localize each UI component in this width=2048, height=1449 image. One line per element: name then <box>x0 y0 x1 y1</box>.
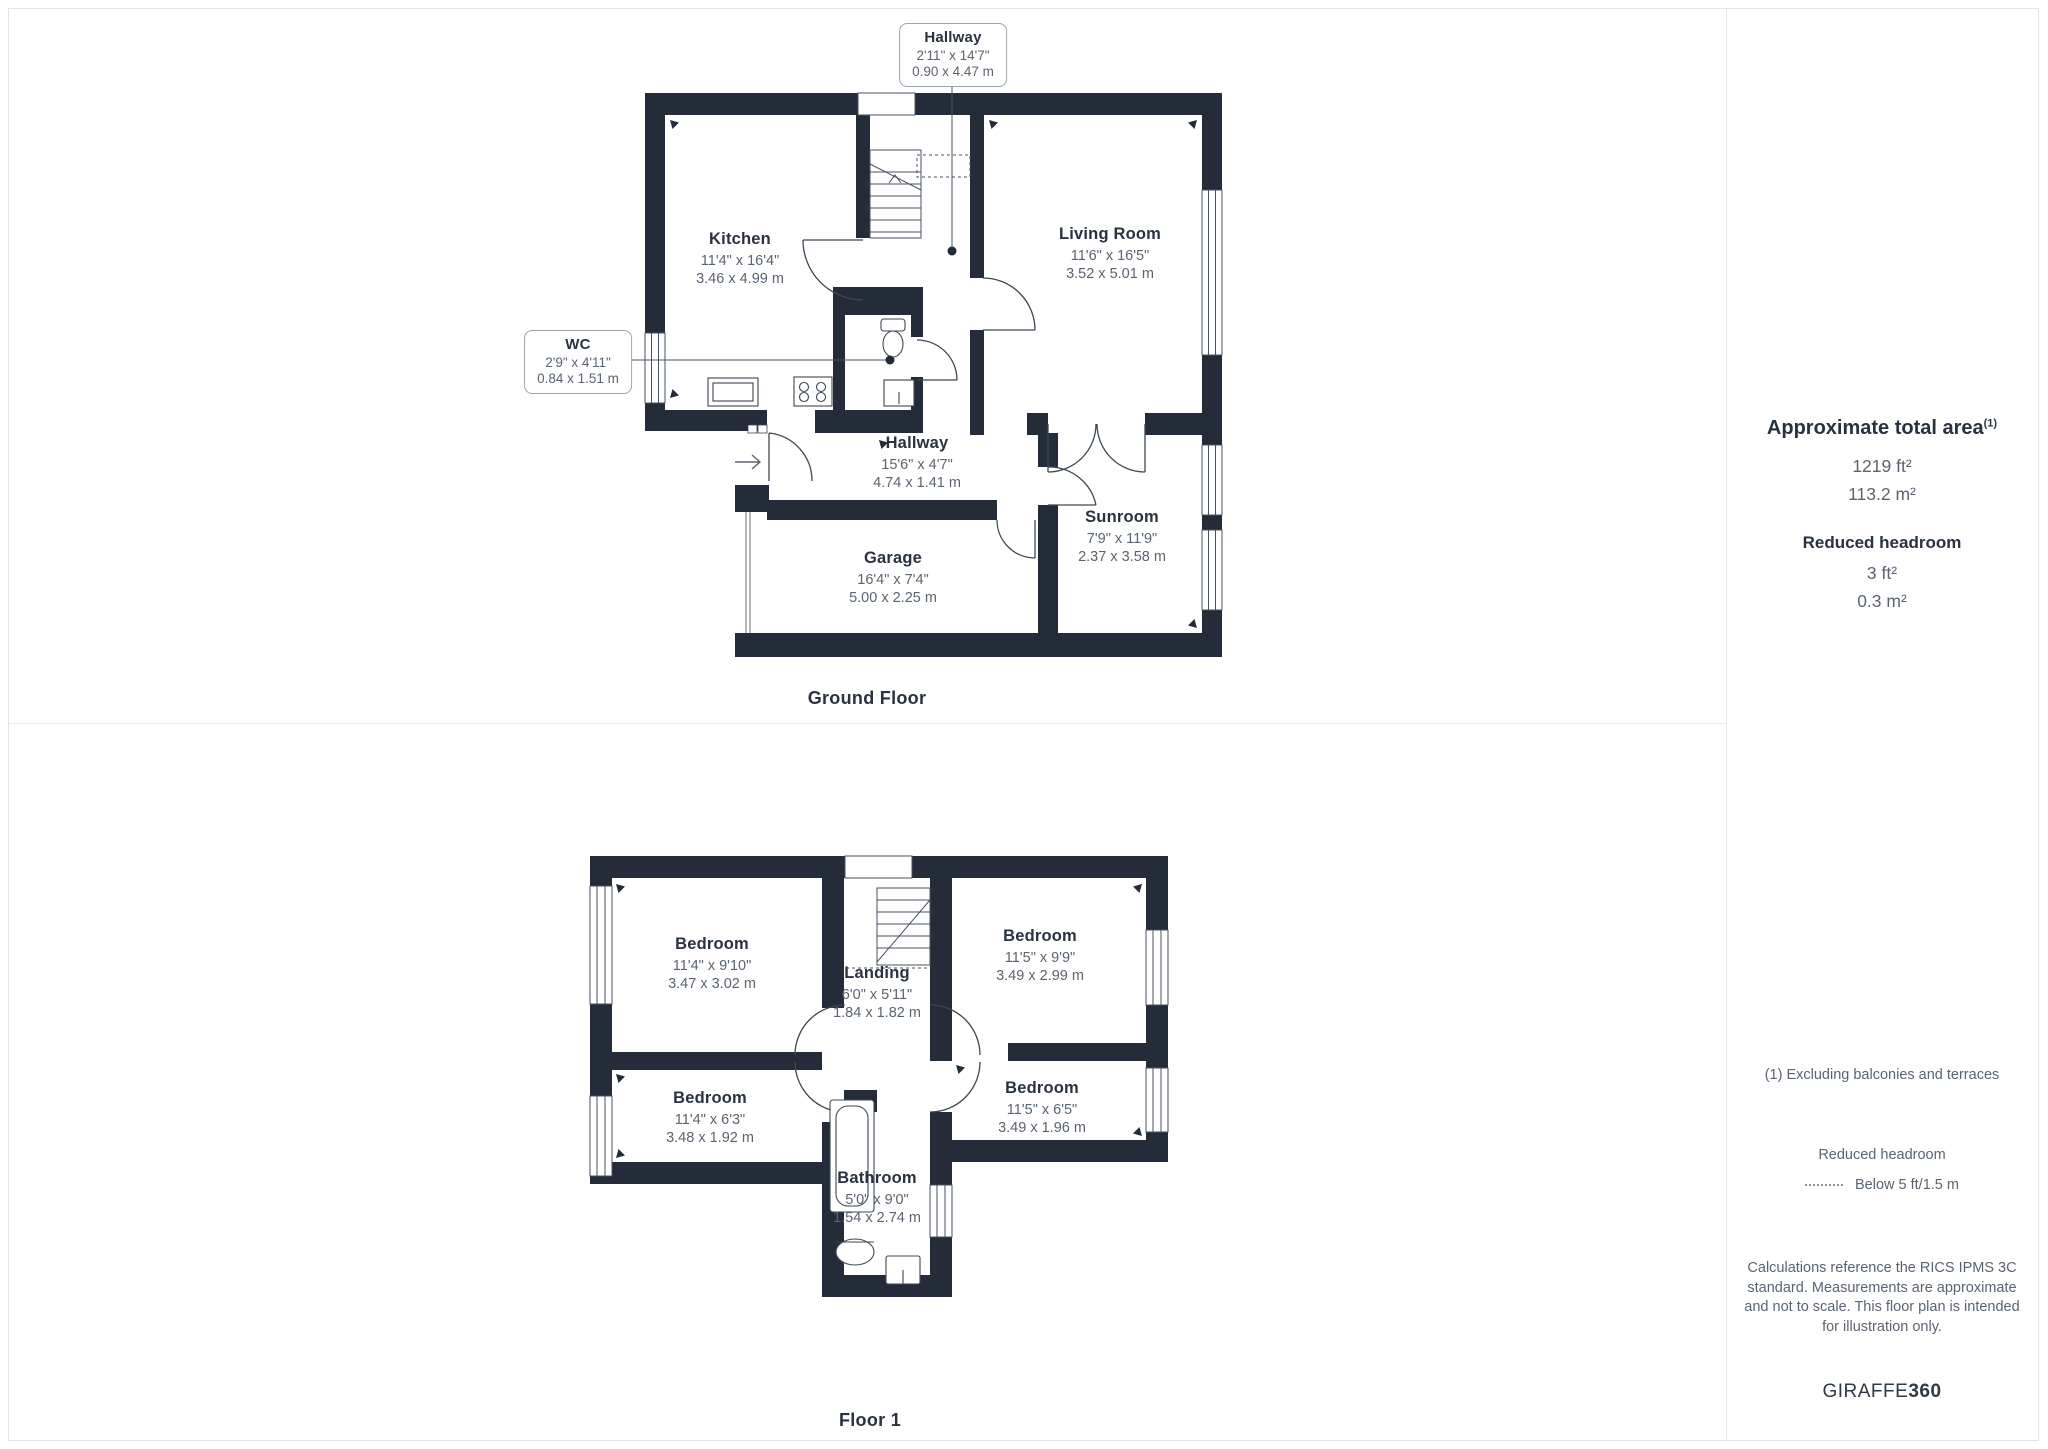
room-dim-metric: 5.00 x 2.25 m <box>849 589 937 607</box>
room-dim-imperial: 5'0" x 9'0" <box>833 1191 921 1209</box>
chimney-recess <box>858 93 915 115</box>
total-area-ft: 1219 ft² <box>1727 456 2037 477</box>
room-dim-imperial: 16'4" x 7'4" <box>849 571 937 589</box>
room-dim-imperial: 6'0" x 5'11" <box>833 986 921 1004</box>
total-area-title: Approximate total area(1) <box>1727 417 2037 440</box>
room-label-living-room: Living Room 11'6" x 16'5" 3.52 x 5.01 m <box>1059 225 1161 283</box>
room-dim-metric: 0.90 x 4.47 m <box>912 64 994 80</box>
footnote-marker: (1) <box>1984 417 1997 429</box>
room-label-sunroom: Sunroom 7'9" x 11'9" 2.37 x 3.58 m <box>1078 508 1166 566</box>
callout-wc: WC 2'9" x 4'11" 0.84 x 1.51 m <box>524 330 632 394</box>
room-dim-imperial: 15'6" x 4'7" <box>873 456 961 474</box>
legend-title: Reduced headroom <box>1727 1147 2037 1163</box>
room-dim-metric: 0.84 x 1.51 m <box>537 371 619 387</box>
room-dim-imperial: 11'5" x 9'9" <box>996 949 1084 967</box>
room-name: Bedroom <box>668 935 756 954</box>
room-dim-imperial: 11'4" x 9'10" <box>668 957 756 975</box>
room-dim-imperial: 2'9" x 4'11" <box>537 355 619 371</box>
entry-arrow-icon <box>735 455 760 469</box>
room-label-bedroom-top-right: Bedroom 11'5" x 9'9" 3.49 x 2.99 m <box>996 927 1084 985</box>
room-name: Sunroom <box>1078 508 1166 527</box>
dotted-line-icon <box>1805 1184 1843 1186</box>
room-dim-metric: 1.54 x 2.74 m <box>833 1209 921 1227</box>
floor-1-plan <box>590 856 1168 1297</box>
room-dim-imperial: 11'5" x 6'5" <box>998 1101 1086 1119</box>
room-label-hallway: Hallway 15'6" x 4'7" 4.74 x 1.41 m <box>873 434 961 492</box>
ground-floor-title: Ground Floor <box>808 688 927 709</box>
toilet <box>886 1256 920 1284</box>
stairs <box>870 150 970 238</box>
room-dim-metric: 4.74 x 1.41 m <box>873 474 961 492</box>
garage-open-boundary <box>746 512 750 633</box>
room-name: WC <box>537 336 619 353</box>
room-name: Bathroom <box>833 1169 921 1188</box>
room-label-kitchen: Kitchen 11'4" x 16'4" 3.46 x 4.99 m <box>696 230 784 288</box>
room-dim-metric: 3.47 x 3.02 m <box>668 975 756 993</box>
legend-label: Below 5 ft/1.5 m <box>1855 1177 1959 1193</box>
room-name: Garage <box>849 549 937 568</box>
room-dim-imperial: 7'9" x 11'9" <box>1078 530 1166 548</box>
floor-1-title: Floor 1 <box>839 1410 901 1431</box>
room-label-landing: Landing 6'0" x 5'11" 1.84 x 1.82 m <box>833 964 921 1022</box>
room-name: Living Room <box>1059 225 1161 244</box>
total-area-title-text: Approximate total area <box>1767 417 1984 439</box>
reduced-headroom-ft: 3 ft² <box>1727 563 2037 584</box>
callout-hallway-upper: Hallway 2'11" x 14'7" 0.90 x 4.47 m <box>899 23 1007 87</box>
room-dim-imperial: 11'4" x 16'4" <box>696 252 784 270</box>
summary-sidebar: Approximate total area(1) 1219 ft² 113.2… <box>1727 9 2037 1439</box>
room-name: Hallway <box>912 29 994 46</box>
room-dim-metric: 3.48 x 1.92 m <box>666 1129 754 1147</box>
chimney-recess <box>845 856 912 878</box>
room-dim-imperial: 11'4" x 6'3" <box>666 1111 754 1129</box>
brand-number: 360 <box>1908 1381 1941 1402</box>
bathroom-sink <box>836 1239 874 1265</box>
wc-basin <box>884 380 914 406</box>
room-label-bedroom-bottom-right: Bedroom 11'5" x 6'5" 3.49 x 1.96 m <box>998 1079 1086 1137</box>
brand-logo: GIRAFFE360 <box>1727 1381 2037 1403</box>
room-label-garage: Garage 16'4" x 7'4" 5.00 x 2.25 m <box>849 549 937 607</box>
room-name: Hallway <box>873 434 961 453</box>
room-name: Bedroom <box>666 1089 754 1108</box>
room-dim-imperial: 2'11" x 14'7" <box>912 48 994 64</box>
room-dim-metric: 1.84 x 1.82 m <box>833 1004 921 1022</box>
reduced-headroom-m: 0.3 m² <box>1727 591 2037 612</box>
room-name: Bedroom <box>998 1079 1086 1098</box>
room-label-bathroom: Bathroom 5'0" x 9'0" 1.54 x 2.74 m <box>833 1169 921 1227</box>
room-dim-metric: 3.49 x 1.96 m <box>998 1119 1086 1137</box>
room-dim-imperial: 11'6" x 16'5" <box>1059 247 1161 265</box>
callout-connectors <box>630 82 957 365</box>
room-name: Kitchen <box>696 230 784 249</box>
room-dim-metric: 3.52 x 5.01 m <box>1059 265 1161 283</box>
disclaimer-text: Calculations reference the RICS IPMS 3C … <box>1741 1259 2023 1337</box>
footnote-text: (1) Excluding balconies and terraces <box>1727 1067 2037 1083</box>
brand-name: GIRAFFE <box>1822 1381 1908 1402</box>
walls <box>590 856 1168 1297</box>
room-dim-metric: 3.46 x 4.99 m <box>696 270 784 288</box>
room-label-bedroom-bottom-left: Bedroom 11'4" x 6'3" 3.48 x 1.92 m <box>666 1089 754 1147</box>
room-dim-metric: 2.37 x 3.58 m <box>1078 548 1166 566</box>
hob <box>794 377 832 406</box>
toilet <box>881 319 905 357</box>
room-name: Landing <box>833 964 921 983</box>
kitchen-sink <box>708 378 758 406</box>
total-area-m: 113.2 m² <box>1727 484 2037 505</box>
room-dim-metric: 3.49 x 2.99 m <box>996 967 1084 985</box>
room-name: Bedroom <box>996 927 1084 946</box>
stairs <box>846 888 930 968</box>
reduced-headroom-title: Reduced headroom <box>1727 533 2037 553</box>
room-label-bedroom-top-left: Bedroom 11'4" x 9'10" 3.47 x 3.02 m <box>668 935 756 993</box>
reduced-headroom-legend: Below 5 ft/1.5 m <box>1727 1177 2037 1193</box>
